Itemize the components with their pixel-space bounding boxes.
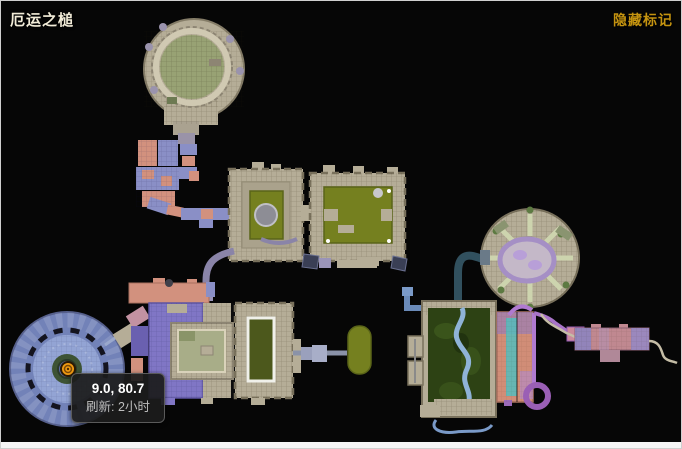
north-arena xyxy=(144,19,244,144)
map-viewer-window: 厄运之槌 隐藏标记 9.0, 80.7 刷新: 2小时 xyxy=(0,0,682,449)
window-bottom-border xyxy=(1,442,681,448)
central-east-hall xyxy=(301,165,407,271)
marker-tooltip: 9.0, 80.7 刷新: 2小时 xyxy=(71,373,165,423)
tooltip-coordinates: 9.0, 80.7 xyxy=(85,379,151,399)
south-squiggle-path xyxy=(434,420,492,432)
east-arena xyxy=(480,207,579,311)
southeast-gardens xyxy=(402,287,496,432)
reflecting-pool xyxy=(248,318,274,381)
tooltip-refresh-time: 刷新: 2小时 xyxy=(85,399,151,417)
east-corridor xyxy=(541,314,677,363)
south-capsule xyxy=(348,326,371,374)
central-dais xyxy=(255,204,277,226)
central-west-hall xyxy=(229,162,303,261)
hide-markers-button[interactable]: 隐藏标记 xyxy=(613,10,673,30)
map-title: 厄运之槌 xyxy=(10,9,74,30)
west-chain xyxy=(136,140,231,228)
